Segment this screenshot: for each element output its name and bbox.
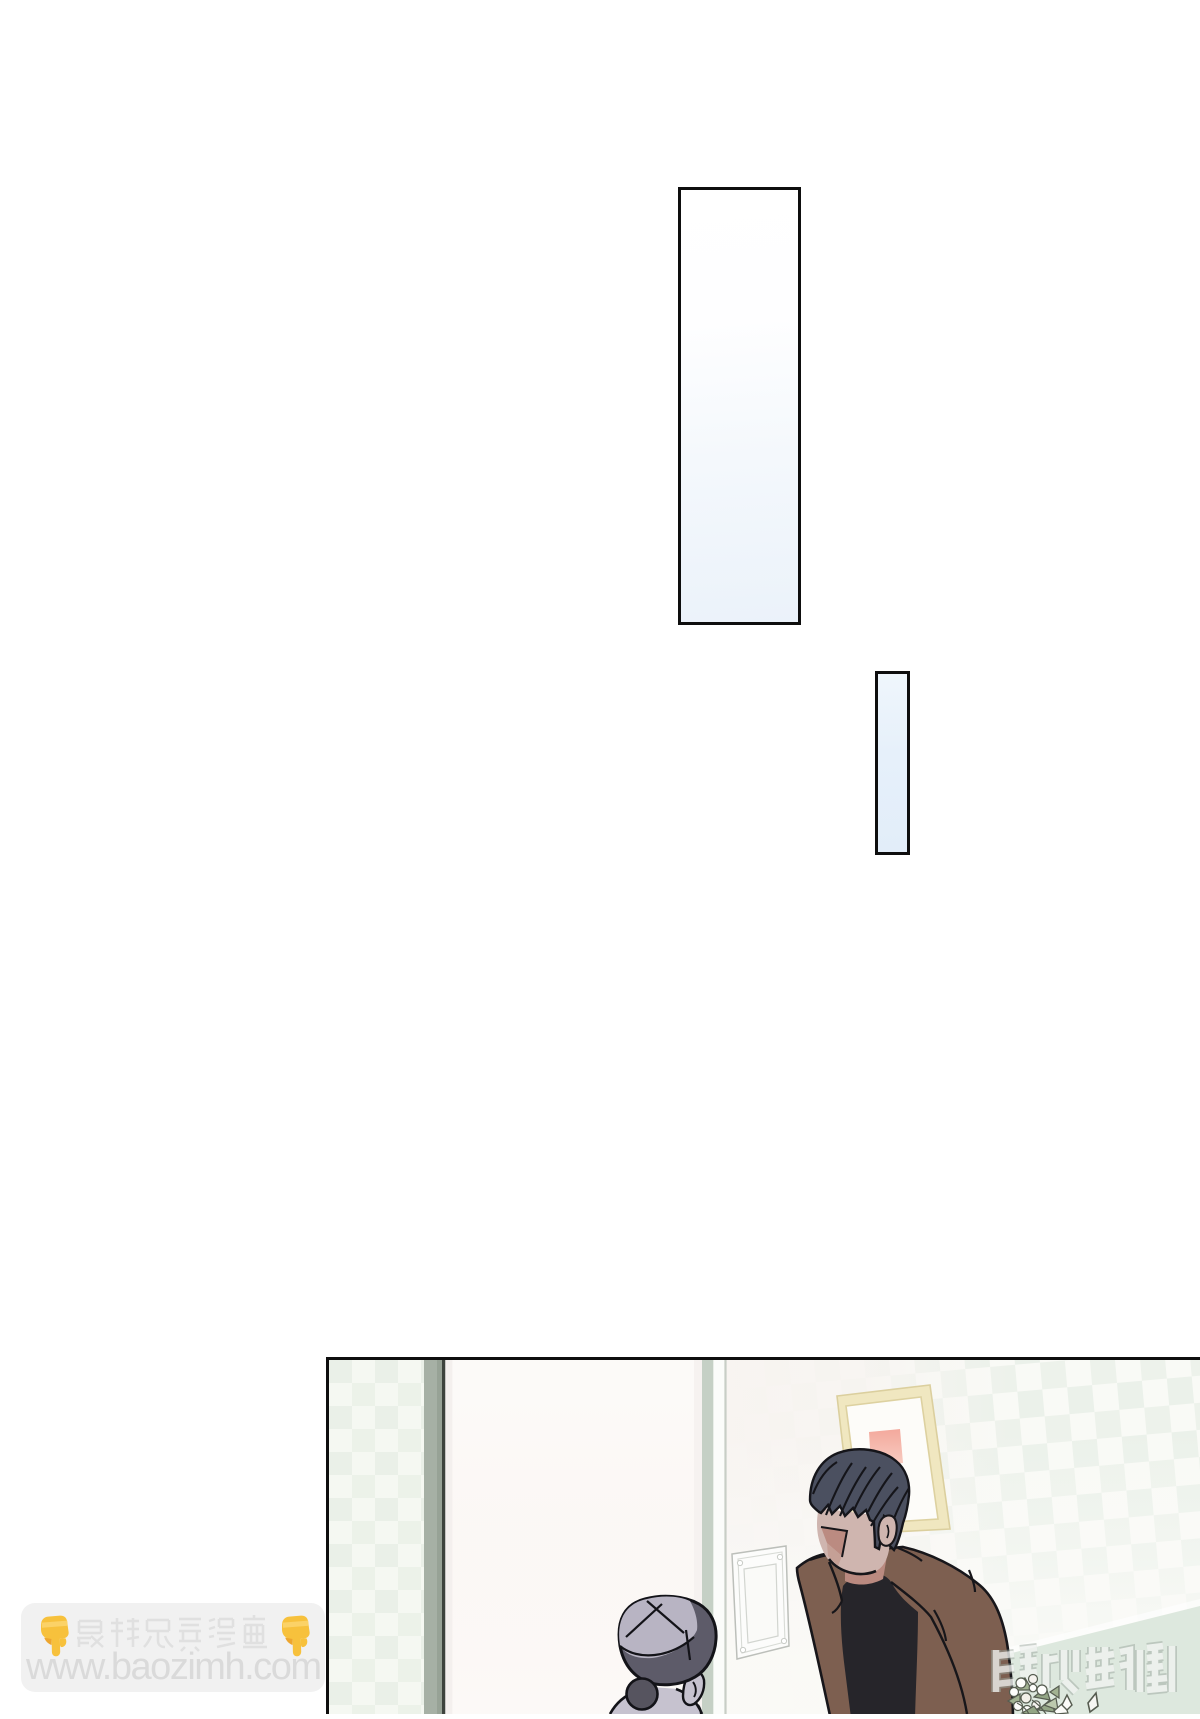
svg-text:www.baozimh.com: www.baozimh.com [25,1646,322,1688]
